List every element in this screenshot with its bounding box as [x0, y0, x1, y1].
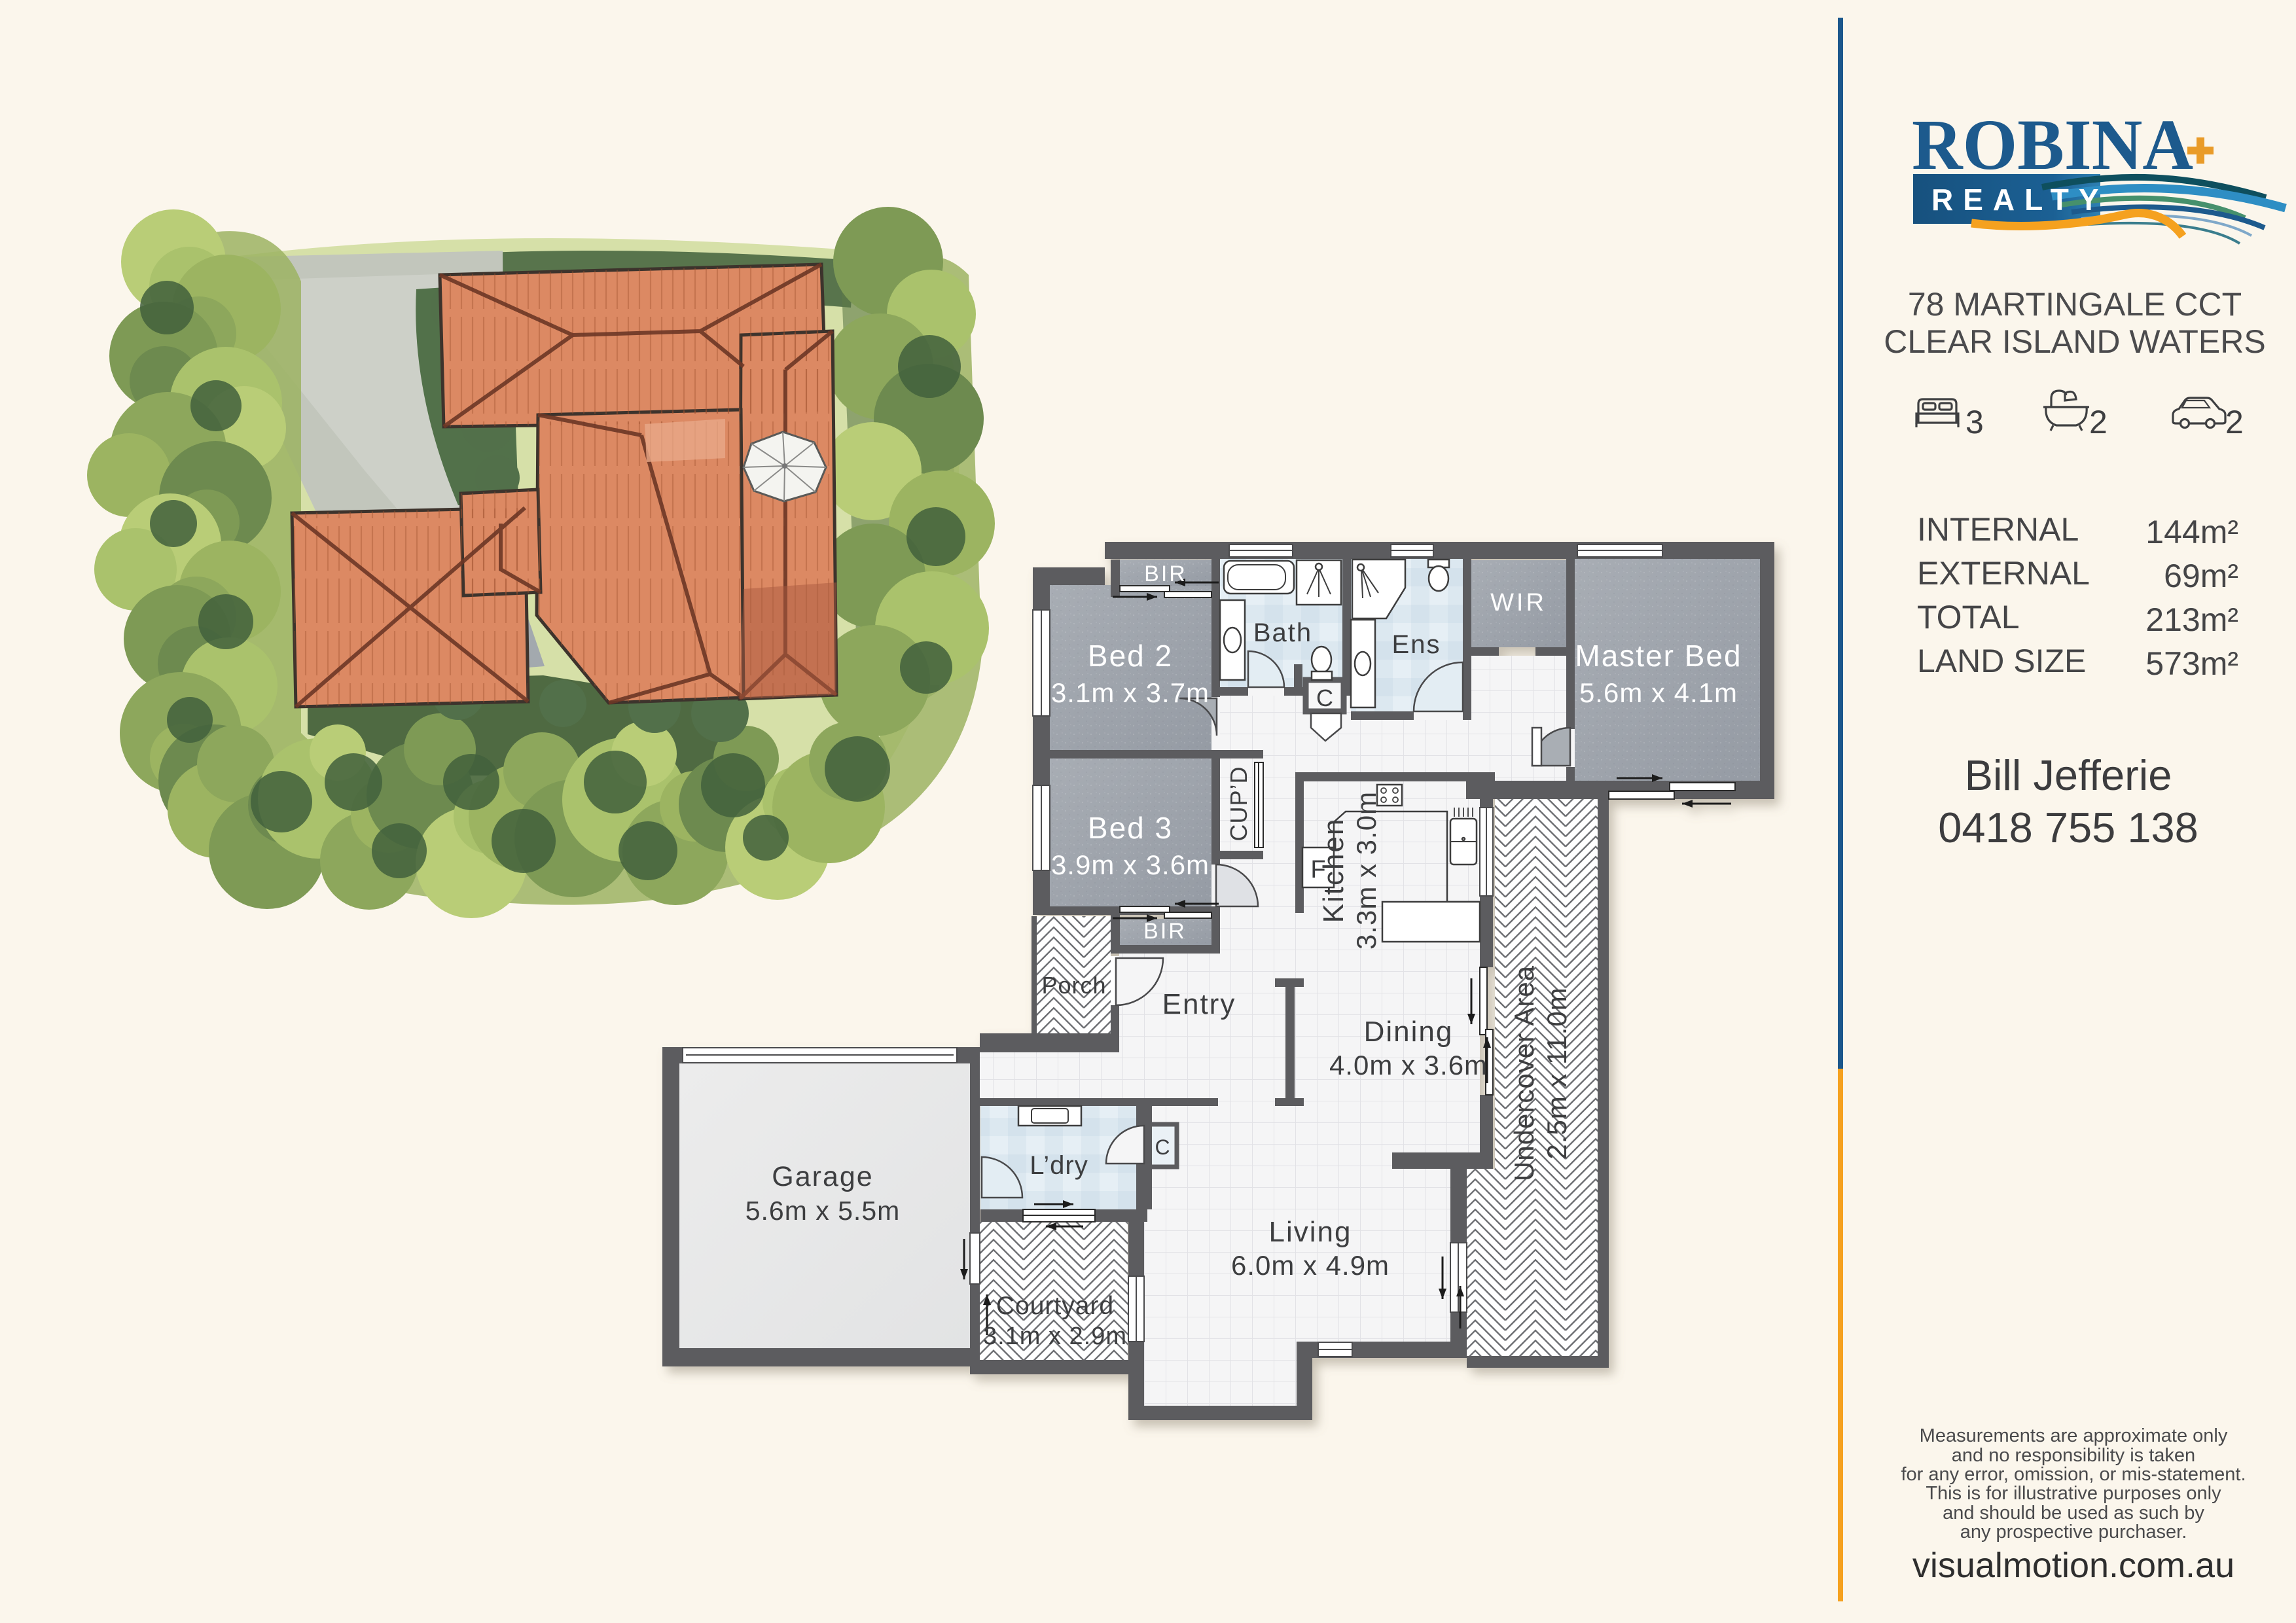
svg-text:2: 2 — [2089, 404, 2108, 440]
svg-text:REALTY: REALTY — [1931, 183, 2109, 217]
svg-text:Porch: Porch — [1041, 972, 1106, 999]
svg-text:Living: Living — [1269, 1216, 1352, 1248]
svg-text:TOTAL: TOTAL — [1917, 599, 2020, 635]
svg-text:3: 3 — [1965, 404, 1984, 440]
svg-text:213m²: 213m² — [2145, 601, 2238, 638]
svg-text:ROBINA: ROBINA — [1912, 105, 2193, 185]
svg-text:Dining: Dining — [1364, 1016, 1454, 1048]
svg-text:3.3m x 3.0m: 3.3m x 3.0m — [1351, 791, 1382, 950]
svg-text:Bath: Bath — [1253, 618, 1312, 647]
svg-text:3.1m x 2.9m: 3.1m x 2.9m — [983, 1323, 1127, 1350]
svg-text:Master Bed: Master Bed — [1575, 639, 1742, 673]
svg-text:5.6m x 5.5m: 5.6m x 5.5m — [745, 1196, 901, 1226]
svg-text:Courtyard: Courtyard — [996, 1292, 1114, 1320]
svg-text:4.0m x 3.6m: 4.0m x 3.6m — [1329, 1050, 1488, 1080]
svg-text:CUP’D: CUP’D — [1225, 766, 1252, 841]
svg-text:Bill Jefferie: Bill Jefferie — [1965, 751, 2172, 799]
svg-text:Bed 2: Bed 2 — [1088, 639, 1173, 673]
svg-text:EXTERNAL: EXTERNAL — [1917, 555, 2090, 592]
svg-text:any prospective purchaser.: any prospective purchaser. — [1960, 1522, 2187, 1543]
svg-text:visualmotion.com.au: visualmotion.com.au — [1912, 1546, 2234, 1585]
svg-text:78 MARTINGALE CCT: 78 MARTINGALE CCT — [1908, 286, 2242, 323]
svg-text:Undercover Area: Undercover Area — [1509, 965, 1539, 1181]
svg-text:2: 2 — [2225, 404, 2244, 440]
svg-text:6.0m x 4.9m: 6.0m x 4.9m — [1231, 1250, 1390, 1281]
svg-text:2.5m x 11.0m: 2.5m x 11.0m — [1541, 987, 1572, 1159]
svg-text:3.1m x 3.7m: 3.1m x 3.7m — [1051, 677, 1210, 708]
svg-text:CLEAR ISLAND WATERS: CLEAR ISLAND WATERS — [1884, 323, 2265, 360]
svg-text:INTERNAL: INTERNAL — [1917, 511, 2079, 548]
svg-text:L’dry: L’dry — [1030, 1151, 1088, 1180]
svg-text:This is for illustrative purpo: This is for illustrative purposes only — [1926, 1483, 2221, 1504]
svg-text:Entry: Entry — [1162, 988, 1236, 1020]
svg-text:573m²: 573m² — [2145, 645, 2238, 682]
svg-text:0418 755 138: 0418 755 138 — [1938, 804, 2198, 851]
svg-text:WIR: WIR — [1490, 589, 1547, 616]
svg-text:and should be used as such by: and should be used as such by — [1943, 1503, 2204, 1524]
svg-text:3.9m x 3.6m: 3.9m x 3.6m — [1051, 849, 1210, 880]
svg-text:5.6m x 4.1m: 5.6m x 4.1m — [1579, 677, 1738, 708]
svg-text:Bed 3: Bed 3 — [1088, 811, 1173, 845]
svg-text:69m²: 69m² — [2164, 558, 2238, 594]
svg-text:and no responsibility is taken: and no responsibility is taken — [1952, 1445, 2195, 1466]
svg-text:Measurements are approximate o: Measurements are approximate only — [1920, 1425, 2228, 1446]
svg-text:BIR: BIR — [1143, 919, 1187, 944]
svg-text:C: C — [1316, 685, 1333, 711]
svg-text:LAND SIZE: LAND SIZE — [1917, 643, 2086, 679]
svg-text:144m²: 144m² — [2145, 514, 2238, 550]
svg-text:BIR: BIR — [1144, 562, 1187, 586]
svg-text:for any error, omission, or mi: for any error, omission, or mis-statemen… — [1901, 1464, 2246, 1485]
svg-text:Ens: Ens — [1392, 630, 1441, 659]
svg-text:F: F — [1310, 856, 1325, 883]
svg-text:Garage: Garage — [772, 1161, 873, 1192]
svg-text:C: C — [1155, 1135, 1170, 1159]
